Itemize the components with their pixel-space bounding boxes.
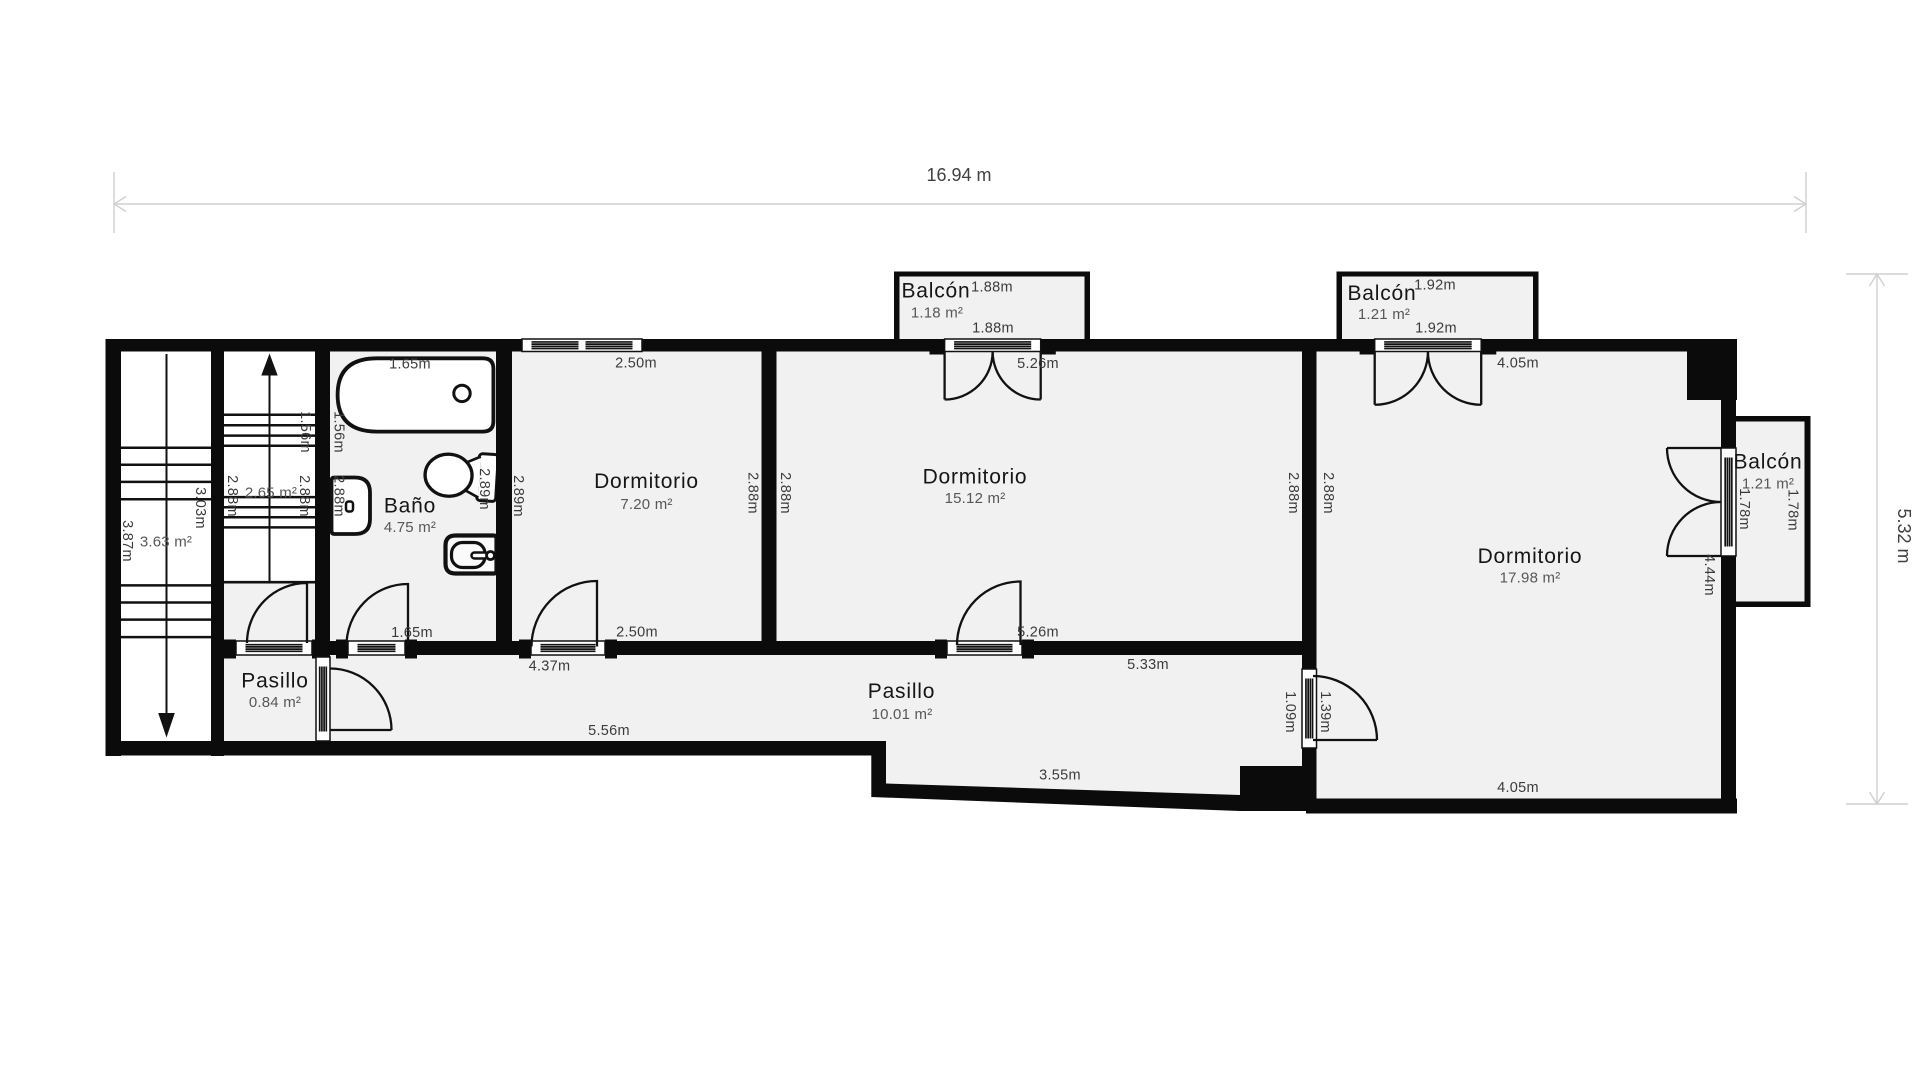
svg-text:1.88m: 1.88m [971,280,1013,296]
svg-text:Balcón: Balcón [1733,451,1802,474]
svg-text:7.20 m²: 7.20 m² [620,496,672,513]
svg-text:2.88m: 2.88m [331,475,347,517]
svg-text:0.84 m²: 0.84 m² [249,694,301,711]
svg-text:5.56m: 5.56m [588,723,630,739]
svg-text:5.26m: 5.26m [1017,356,1059,372]
svg-text:Dormitorio: Dormitorio [923,466,1028,489]
svg-text:3.87m: 3.87m [119,520,135,562]
svg-text:2.88m: 2.88m [745,472,761,514]
svg-text:2.88m: 2.88m [296,475,312,517]
svg-text:3.03m: 3.03m [192,487,208,529]
svg-text:5.32 m: 5.32 m [1894,508,1914,563]
svg-text:1.92m: 1.92m [1414,278,1456,294]
svg-text:1.88m: 1.88m [972,321,1014,337]
svg-text:3.55m: 3.55m [1039,768,1081,784]
svg-text:2.88m: 2.88m [1285,472,1301,514]
svg-text:4.37m: 4.37m [529,659,571,675]
svg-text:15.12 m²: 15.12 m² [945,490,1006,507]
svg-text:Pasillo: Pasillo [868,680,935,703]
svg-text:2.50m: 2.50m [615,356,657,372]
svg-text:1.78m: 1.78m [1736,488,1752,530]
svg-text:5.33m: 5.33m [1127,657,1169,673]
svg-text:1.92m: 1.92m [1415,321,1457,337]
svg-text:1.56m: 1.56m [297,411,313,453]
svg-text:2.88m: 2.88m [224,475,240,517]
svg-text:1.21 m²: 1.21 m² [1358,306,1410,323]
svg-text:2.88m: 2.88m [1320,472,1336,514]
svg-text:2.88m: 2.88m [777,472,793,514]
svg-text:16.94 m: 16.94 m [926,165,991,185]
svg-text:1.65m: 1.65m [391,625,433,641]
svg-text:Pasillo: Pasillo [241,670,308,693]
svg-text:17.98 m²: 17.98 m² [1500,570,1561,587]
svg-text:Dormitorio: Dormitorio [1478,545,1583,568]
svg-text:4.05m: 4.05m [1497,356,1539,372]
svg-text:3.63 m²: 3.63 m² [140,534,192,551]
svg-text:1.56m: 1.56m [331,411,347,453]
svg-text:1.39m: 1.39m [1317,691,1333,733]
svg-text:1.78m: 1.78m [1785,489,1801,531]
svg-text:5.26m: 5.26m [1017,625,1059,641]
svg-text:Baño: Baño [384,495,436,518]
svg-text:1.18 m²: 1.18 m² [911,305,963,322]
svg-text:Balcón: Balcón [901,280,970,303]
svg-text:4.44m: 4.44m [1701,554,1717,596]
svg-text:1.09m: 1.09m [1282,691,1298,733]
svg-text:4.05m: 4.05m [1497,780,1539,796]
svg-text:1.65m: 1.65m [389,357,431,373]
svg-text:2.89m: 2.89m [476,468,492,510]
svg-text:2.65 m²: 2.65 m² [245,485,297,502]
svg-text:Dormitorio: Dormitorio [594,470,699,493]
svg-text:2.89m: 2.89m [510,475,526,517]
svg-text:4.75 m²: 4.75 m² [384,519,436,536]
svg-text:10.01 m²: 10.01 m² [872,706,933,723]
svg-text:2.50m: 2.50m [616,625,658,641]
svg-text:Balcón: Balcón [1347,282,1416,305]
